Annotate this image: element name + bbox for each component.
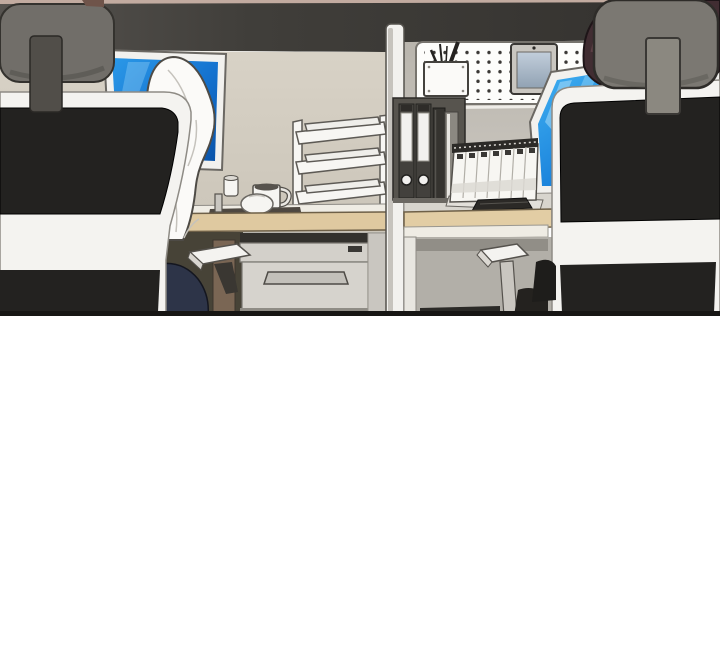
chair-armrest-black [532,260,556,302]
comic-panel [0,0,720,658]
binder-1 [399,104,414,198]
chair-back-upper [560,97,720,222]
desk-apron [404,225,548,239]
mouse [241,194,273,214]
binder-2 [416,104,431,198]
right-desk-structure [404,209,552,316]
binder-ring-hole [419,175,429,185]
binder-ring-hole [402,175,412,185]
binder-spine-label [418,113,429,161]
office-scene-illustration [0,0,720,316]
headrest-stem [646,38,680,114]
chair-back-upper [0,108,178,214]
drawer-top [240,243,368,262]
headrest-stem [30,36,62,112]
blank-gutter [0,316,720,658]
pencil-box [424,62,468,96]
drawer-gap-shadow [240,233,370,243]
paper-edge [447,114,450,198]
binder-spine-label [401,113,412,161]
desk-leg-panel [368,233,386,316]
chair-back-lower [560,262,716,313]
chair-back-lower [0,270,160,312]
drawer-unit [240,243,368,314]
right-desk-leg [404,237,416,316]
drawer-handle [264,272,348,284]
drawer-front [242,262,368,310]
tablet-camera-dot [532,46,535,49]
